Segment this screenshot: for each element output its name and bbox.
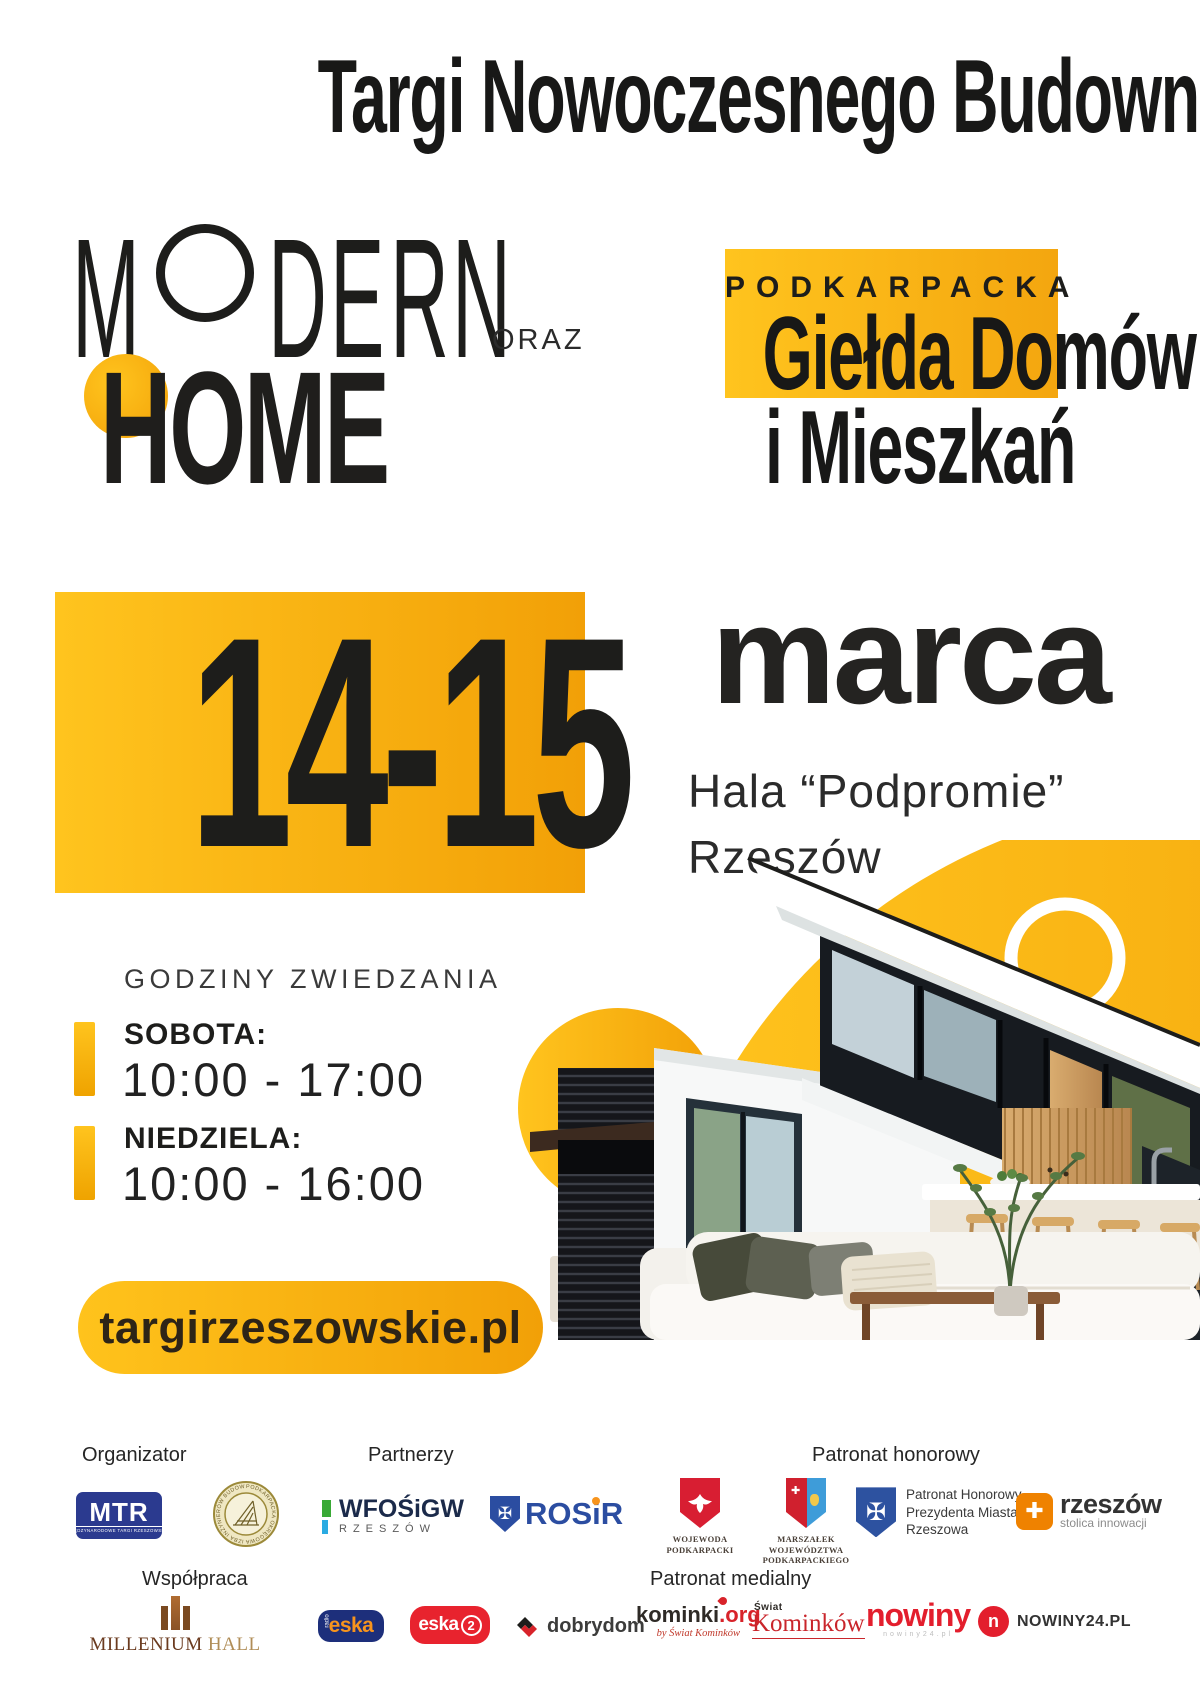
wfosigw-bars-icon — [322, 1496, 331, 1534]
gielda-line2: i Mieszkań — [630, 396, 1200, 500]
logo-swiat-kominkow: Świat Kominków — [752, 1602, 865, 1639]
wfosigw-text: WFOŚiGW — [339, 1496, 464, 1522]
nowiny-text: nowiny — [866, 1600, 970, 1630]
hours-time-sunday: 10:00 - 16:00 — [122, 1156, 425, 1211]
wfosigw-subtext: RZESZÓW — [339, 1523, 464, 1535]
logo-mtr: MTR MIĘDZYNARODOWE TARGI RZESZOWSKIE — [76, 1492, 162, 1539]
brand-letter: N — [452, 214, 511, 384]
rosir-text: ROSiR — [525, 1496, 623, 1532]
hours-time-saturday: 10:00 - 17:00 — [122, 1052, 425, 1107]
mtr-text: MTR — [89, 1499, 148, 1525]
eska2-number-badge: 2 — [461, 1615, 482, 1636]
venue-name: Hala “Podpromie” — [688, 764, 1064, 818]
label-partnerzy: Partnerzy — [368, 1444, 454, 1467]
rzeszow-subtext: stolica innowacji — [1060, 1516, 1162, 1530]
millenium-bars-icon — [161, 1594, 190, 1630]
logo-millenium-hall: MILLENIUM HALL — [100, 1594, 250, 1656]
oraz-label: ORAZ — [492, 324, 585, 357]
prezydent-caption: Patronat Honorowy Prezydenta Miasta Rzes… — [906, 1486, 1022, 1539]
label-organizator: Organizator — [82, 1444, 187, 1467]
prezydent-shield-icon: ✠ — [856, 1487, 896, 1537]
logo-rzeszow: ✚ rzeszów stolica innowacji — [1016, 1492, 1162, 1530]
logo-radio-eska: radio eska — [318, 1610, 384, 1642]
hero-scene-svg — [490, 840, 1200, 1340]
logo-rosir: ✠ ROSiR — [490, 1496, 623, 1532]
eska-text: eska — [329, 1614, 374, 1638]
label-wspolpraca: Współpraca — [142, 1568, 248, 1591]
marszalek-caption: MARSZAŁEK WOJEWÓDZTWA PODKARPACKIEGO — [752, 1534, 860, 1566]
kominki-text: kominki — [636, 1602, 719, 1627]
swiat-underline — [752, 1638, 865, 1639]
kominki-subtext: by Świat Kominków — [657, 1628, 740, 1639]
poster: Targi Nowoczesnego Budownictwa M D E R N… — [0, 0, 1200, 1690]
hours-day-saturday: SOBOTA: — [124, 1018, 267, 1052]
swiat-text: Kominków — [752, 1613, 865, 1635]
letter-o-circle-icon — [156, 224, 254, 322]
title-text: Targi Nowoczesnego Budownictwa — [318, 38, 1200, 158]
label-patronat-honorowy: Patronat honorowy — [812, 1444, 980, 1467]
shield-lion-icon — [810, 1494, 819, 1506]
wojewoda-caption: WOJEWODA PODKARPACKI — [648, 1534, 752, 1555]
rosir-shield-icon: ✠ — [490, 1496, 520, 1532]
hours-bar — [74, 1126, 95, 1200]
logo-prezydent: ✠ Patronat Honorowy Prezydenta Miasta Rz… — [856, 1486, 1022, 1539]
logo-izba-inzynierow: PODKARPACKA OKRĘGOWA IZBA INŻYNIERÓW BUD… — [213, 1481, 279, 1547]
logo-marszalek: ✚ MARSZAŁEK WOJEWÓDZTWA PODKARPACKIEGO — [752, 1478, 860, 1566]
hero-photo-house — [490, 840, 1200, 1340]
logo-wojewoda: WOJEWODA PODKARPACKI — [648, 1478, 752, 1555]
millenium-text2: HALL — [208, 1634, 261, 1655]
rzeszow-text: rzeszów — [1060, 1492, 1162, 1516]
dobrydom-text: dobrydom — [547, 1615, 645, 1638]
hours-day-sunday: NIEDZIELA: — [124, 1122, 302, 1156]
brand-letter: R — [390, 214, 449, 384]
eska2-text: eska — [418, 1614, 458, 1636]
dobrydom-icon — [512, 1612, 540, 1640]
date-month: marca — [650, 585, 1170, 725]
marszalek-shield-icon: ✚ — [786, 1478, 826, 1528]
label-patronat-medialny: Patronat medialny — [650, 1568, 811, 1591]
website-link[interactable]: targirzeszowskie.pl — [78, 1281, 543, 1374]
shield-cross-icon: ✚ — [791, 1484, 800, 1497]
rzeszow-cross-arrow-icon: ✚ — [1016, 1493, 1053, 1530]
millenium-text1: MILLENIUM — [89, 1634, 202, 1655]
logo-eska2: eska 2 — [410, 1606, 490, 1644]
brand-home: HOME — [100, 348, 388, 508]
gielda-line2-text: i Mieszkań — [765, 396, 1075, 500]
page-title: Targi Nowoczesnego Budownictwa — [0, 38, 1200, 158]
logo-nowiny: nowiny nowiny24.pl — [866, 1600, 970, 1638]
hours-bar — [74, 1022, 95, 1096]
eagle-shield-icon — [680, 1478, 720, 1528]
logo-dobrydom: dobrydom — [512, 1612, 645, 1640]
nowiny-subtext: nowiny24.pl — [883, 1631, 953, 1638]
hours-heading: GODZINY ZWIEDZANIA — [124, 964, 502, 995]
logo-wfosigw: WFOŚiGW RZESZÓW — [322, 1496, 464, 1535]
nowiny24-badge-icon: n — [978, 1606, 1009, 1637]
mtr-subtext: MIĘDZYNARODOWE TARGI RZESZOWSKIE — [68, 1526, 169, 1533]
nowiny24-text: NOWINY24.PL — [1017, 1613, 1131, 1631]
eska-radio-text: radio — [325, 1614, 331, 1627]
logo-kominki-org: kominki.org by Świat Kominków — [636, 1604, 761, 1639]
logo-nowiny24: n NOWINY24.PL — [978, 1606, 1131, 1637]
